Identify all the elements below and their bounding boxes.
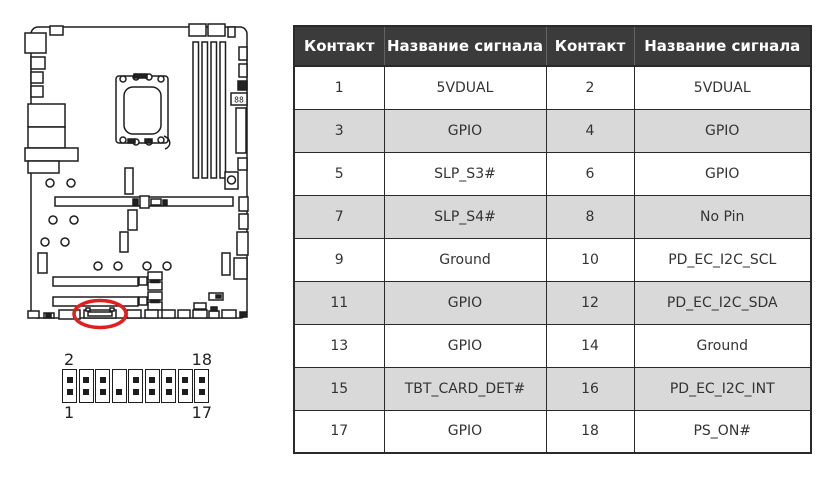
signal-name-cell: SLP_S4# (384, 195, 546, 238)
pin-number-cell: 3 (294, 109, 384, 152)
pin-number-cell: 17 (294, 410, 384, 453)
signal-name-cell: TBT_CARD_DET# (384, 367, 546, 410)
signal-name-cell: No Pin (634, 195, 811, 238)
signal-name-cell: GPIO (384, 109, 546, 152)
pin-number-cell: 15 (294, 367, 384, 410)
pin-number-cell: 18 (546, 410, 634, 453)
pin (67, 377, 73, 383)
table-row: 15TBT_CARD_DET#16PD_EC_I2C_INT (294, 367, 811, 410)
pin-labels-bottom: 1 17 (62, 403, 214, 422)
header-cell: Название сигнала (634, 26, 811, 66)
pin (67, 389, 73, 395)
table-row: 3GPIO4GPIO (294, 109, 811, 152)
table-row: 17GPIO18PS_ON# (294, 410, 811, 453)
signal-name-cell: PD_EC_I2C_SCL (634, 238, 811, 281)
pin-cell (161, 369, 176, 403)
motherboard-diagram: 88 (0, 0, 270, 340)
pinout-table: КонтактНазвание сигналаКонтактНазвание с… (293, 25, 812, 454)
pin-cell (145, 369, 160, 403)
pin-number-cell: 12 (546, 281, 634, 324)
pin-number-cell: 14 (546, 324, 634, 367)
pinout-table-body: 15VDUAL25VDUAL3GPIO4GPIO5SLP_S3#6GPIO7SL… (294, 66, 811, 453)
m2-slot (55, 196, 233, 208)
pin (83, 377, 89, 383)
pin-labels-top: 2 18 (62, 350, 214, 369)
pin (166, 389, 172, 395)
signal-name-cell: GPIO (634, 152, 811, 195)
pin-label-top-right: 18 (192, 350, 212, 369)
table-header-row: КонтактНазвание сигналаКонтактНазвание с… (294, 26, 811, 66)
signal-name-cell: PD_EC_I2C_INT (634, 367, 811, 410)
pin (100, 377, 106, 383)
pin (182, 377, 188, 383)
pin (133, 377, 139, 383)
pin-number-cell: 10 (546, 238, 634, 281)
signal-name-cell: 5VDUAL (384, 66, 546, 109)
debug-led-value: 88 (234, 96, 244, 105)
pin-cell (79, 369, 94, 403)
pin (182, 389, 188, 395)
pin-cell (128, 369, 143, 403)
signal-name-cell: GPIO (384, 324, 546, 367)
pin (116, 389, 122, 395)
header-cell: Контакт (294, 26, 384, 66)
pin-label-bottom-left: 1 (64, 403, 74, 422)
pin-label-top-left: 2 (64, 350, 74, 369)
pin-cell (95, 369, 110, 403)
pin (166, 377, 172, 383)
pin-number-cell: 8 (546, 195, 634, 238)
pin-number-cell: 7 (294, 195, 384, 238)
signal-name-cell: GPIO (384, 410, 546, 453)
pin (133, 389, 139, 395)
signal-name-cell: GPIO (384, 281, 546, 324)
pin-number-cell: 6 (546, 152, 634, 195)
pin (199, 377, 205, 383)
table-row: 7SLP_S4#8No Pin (294, 195, 811, 238)
pin-header-diagram: 2 18 1 17 (62, 350, 214, 422)
signal-name-cell: SLP_S3# (384, 152, 546, 195)
battery-icon (228, 176, 236, 184)
pin-cell (178, 369, 193, 403)
highlighted-connector (84, 308, 116, 318)
pin-cell (194, 369, 209, 403)
pin (149, 377, 155, 383)
signal-name-cell: 5VDUAL (634, 66, 811, 109)
pin-cell (112, 369, 127, 403)
pin-number-cell: 16 (546, 367, 634, 410)
pin-number-cell: 2 (546, 66, 634, 109)
pin-grid (62, 369, 214, 403)
pin-number-cell: 1 (294, 66, 384, 109)
signal-name-cell: PS_ON# (634, 410, 811, 453)
pin-number-cell: 4 (546, 109, 634, 152)
pin (149, 389, 155, 395)
pin-number-cell: 13 (294, 324, 384, 367)
pin (199, 389, 205, 395)
table-row: 5SLP_S3#6GPIO (294, 152, 811, 195)
pin-label-bottom-right: 17 (192, 403, 212, 422)
table-row: 15VDUAL25VDUAL (294, 66, 811, 109)
manual-page: 88 2 18 1 17 КонтактНазвание сигналаКонт… (0, 0, 832, 480)
pin (83, 389, 89, 395)
signal-name-cell: PD_EC_I2C_SDA (634, 281, 811, 324)
atx-power-connector (236, 108, 246, 153)
pin-number-cell: 5 (294, 152, 384, 195)
table-row: 9Ground10PD_EC_I2C_SCL (294, 238, 811, 281)
pin-number-cell: 9 (294, 238, 384, 281)
pin-number-cell: 11 (294, 281, 384, 324)
table-row: 11GPIO12PD_EC_I2C_SDA (294, 281, 811, 324)
signal-name-cell: Ground (634, 324, 811, 367)
header-cell: Название сигнала (384, 26, 546, 66)
table-row: 13GPIO14Ground (294, 324, 811, 367)
pin (100, 389, 106, 395)
signal-name-cell: GPIO (634, 109, 811, 152)
pin-cell (62, 369, 77, 403)
header-cell: Контакт (546, 26, 634, 66)
cpu-socket (116, 74, 170, 149)
signal-name-cell: Ground (384, 238, 546, 281)
